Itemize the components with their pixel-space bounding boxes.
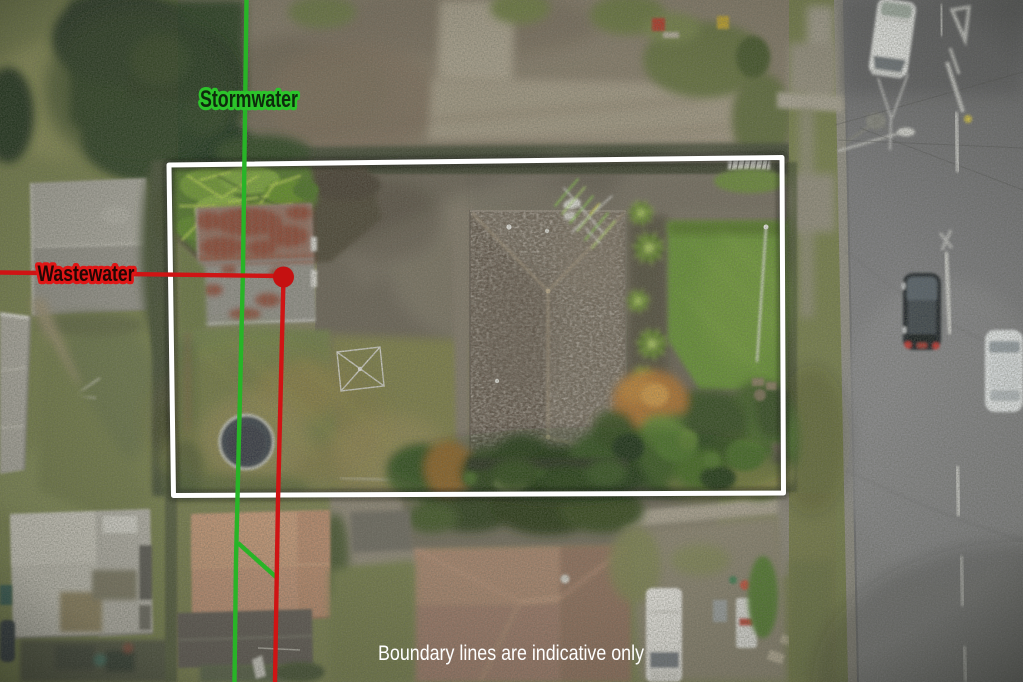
svg-text:Boundary lines are indicative: Boundary lines are indicative only <box>378 641 644 665</box>
svg-text:Wastewater: Wastewater <box>38 261 135 286</box>
svg-text:Stormwater: Stormwater <box>200 86 298 113</box>
